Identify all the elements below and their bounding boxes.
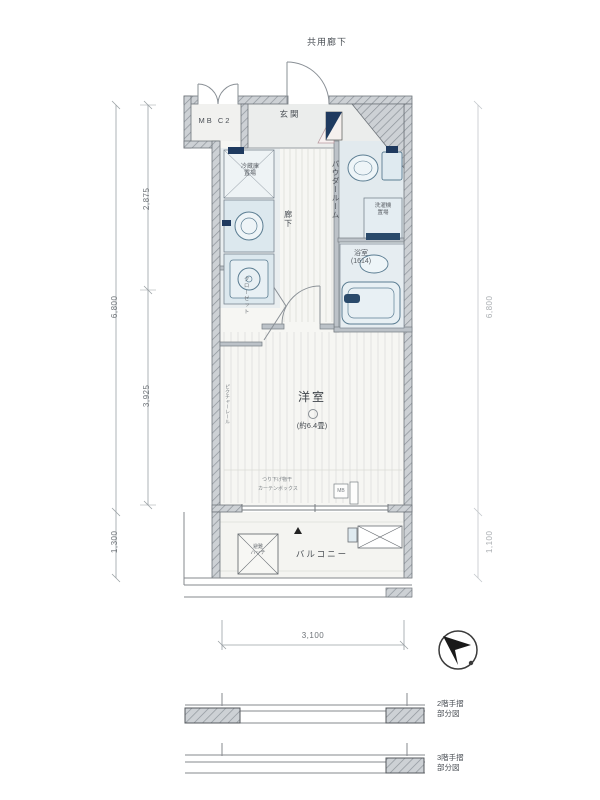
room-window (242, 504, 388, 512)
entrance-door (287, 62, 329, 104)
ground-wall-block (386, 588, 412, 597)
dim-right-total: 6,800 (485, 285, 495, 329)
dim-left-balcony: 1,300 (110, 520, 120, 564)
mb-small-label: MB (334, 488, 348, 494)
meterbox-double-door (198, 84, 238, 104)
light-symbol (308, 409, 318, 419)
meter-box-label: MB C2 (188, 116, 242, 125)
balcony-label: バルコニー (290, 549, 354, 559)
closet-label: クローゼット (242, 276, 249, 336)
escape-hatch-label: 避難 ハッチ (240, 544, 276, 557)
washer-label: 洗濯機 置場 (366, 203, 400, 216)
compass-icon (439, 631, 477, 669)
picture-rail-label: ピクチャーレール (224, 384, 230, 464)
western-room-size-label: (約6.4畳) (277, 421, 347, 430)
dim-bottom-width: 3,100 (283, 631, 343, 641)
refrigerator-label: 冷蔵庫 置場 (228, 164, 272, 178)
dim-right-balcony: 1,100 (485, 520, 495, 564)
handrail-3f-label: 3階手摺 部分図 (437, 753, 464, 773)
handrail-3f-wall-right (386, 758, 424, 773)
shoe-box (326, 112, 342, 140)
kitchen-sink (222, 200, 274, 252)
dim-left-upper: 2,875 (142, 177, 152, 221)
handrail-2f-wall-right (386, 708, 424, 723)
western-room-label: 洋室 (277, 390, 347, 404)
common-corridor-label: 共用廊下 (297, 37, 357, 48)
floorplan-page: 共用廊下 MB C2 玄関 冷蔵庫 置場 廊下 パウダールーム 洗濯機 置場 浴… (0, 0, 600, 800)
dim-left-lower: 3,925 (142, 374, 152, 418)
kitchen-stove (224, 254, 274, 304)
entrance-label: 玄関 (268, 109, 312, 119)
hallway-label: 廊下 (283, 210, 293, 242)
handrail-2f-label: 2階手摺 部分図 (437, 699, 464, 719)
curtain-box-label: カーテンボックス (258, 486, 298, 492)
powder-room-label: パウダールーム (331, 160, 340, 252)
bathroom-label: 浴室 (1614) (336, 250, 386, 267)
laundry-hook-label: つり下げ物干 (262, 477, 292, 483)
handrail-2f-wall-left (185, 708, 240, 723)
dim-left-total: 6,800 (110, 285, 120, 329)
